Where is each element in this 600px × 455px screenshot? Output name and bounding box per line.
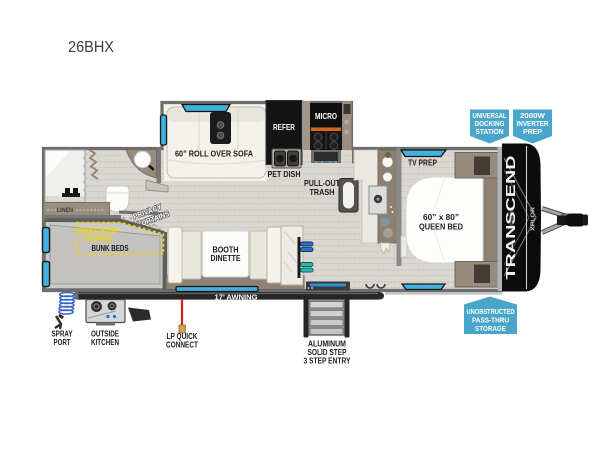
svg-text:TV PREP: TV PREP: [408, 158, 437, 168]
svg-text:60” ROLL OVER SOFA: 60” ROLL OVER SOFA: [175, 149, 253, 159]
svg-text:STATION: STATION: [476, 127, 504, 136]
svg-text:PREP: PREP: [523, 127, 542, 136]
svg-text:TRASH: TRASH: [310, 187, 335, 197]
svg-text:QUEEN BED: QUEEN BED: [419, 223, 463, 232]
svg-text:STORAGE: STORAGE: [475, 324, 506, 333]
svg-text:CONNECT: CONNECT: [166, 341, 198, 350]
svg-text:XPLOR: XPLOR: [531, 206, 537, 231]
svg-text:BUNK BEDS: BUNK BEDS: [92, 243, 129, 253]
svg-text:TRANSCEND: TRANSCEND: [504, 156, 518, 280]
svg-text:PET DISH: PET DISH: [268, 169, 301, 179]
svg-text:REFER: REFER: [273, 122, 296, 132]
svg-text:60” x 80”: 60” x 80”: [423, 213, 459, 222]
svg-text:LINEN: LINEN: [57, 207, 73, 214]
svg-text:26BHX: 26BHX: [68, 39, 115, 56]
svg-text:DINETTE: DINETTE: [211, 254, 242, 263]
svg-text:KITCHEN: KITCHEN: [91, 338, 119, 347]
svg-text:MICRO: MICRO: [315, 112, 337, 121]
svg-text:17’ AWNING: 17’ AWNING: [215, 293, 258, 302]
svg-text:3 STEP ENTRY: 3 STEP ENTRY: [304, 357, 352, 366]
svg-text:PORT: PORT: [54, 338, 71, 347]
